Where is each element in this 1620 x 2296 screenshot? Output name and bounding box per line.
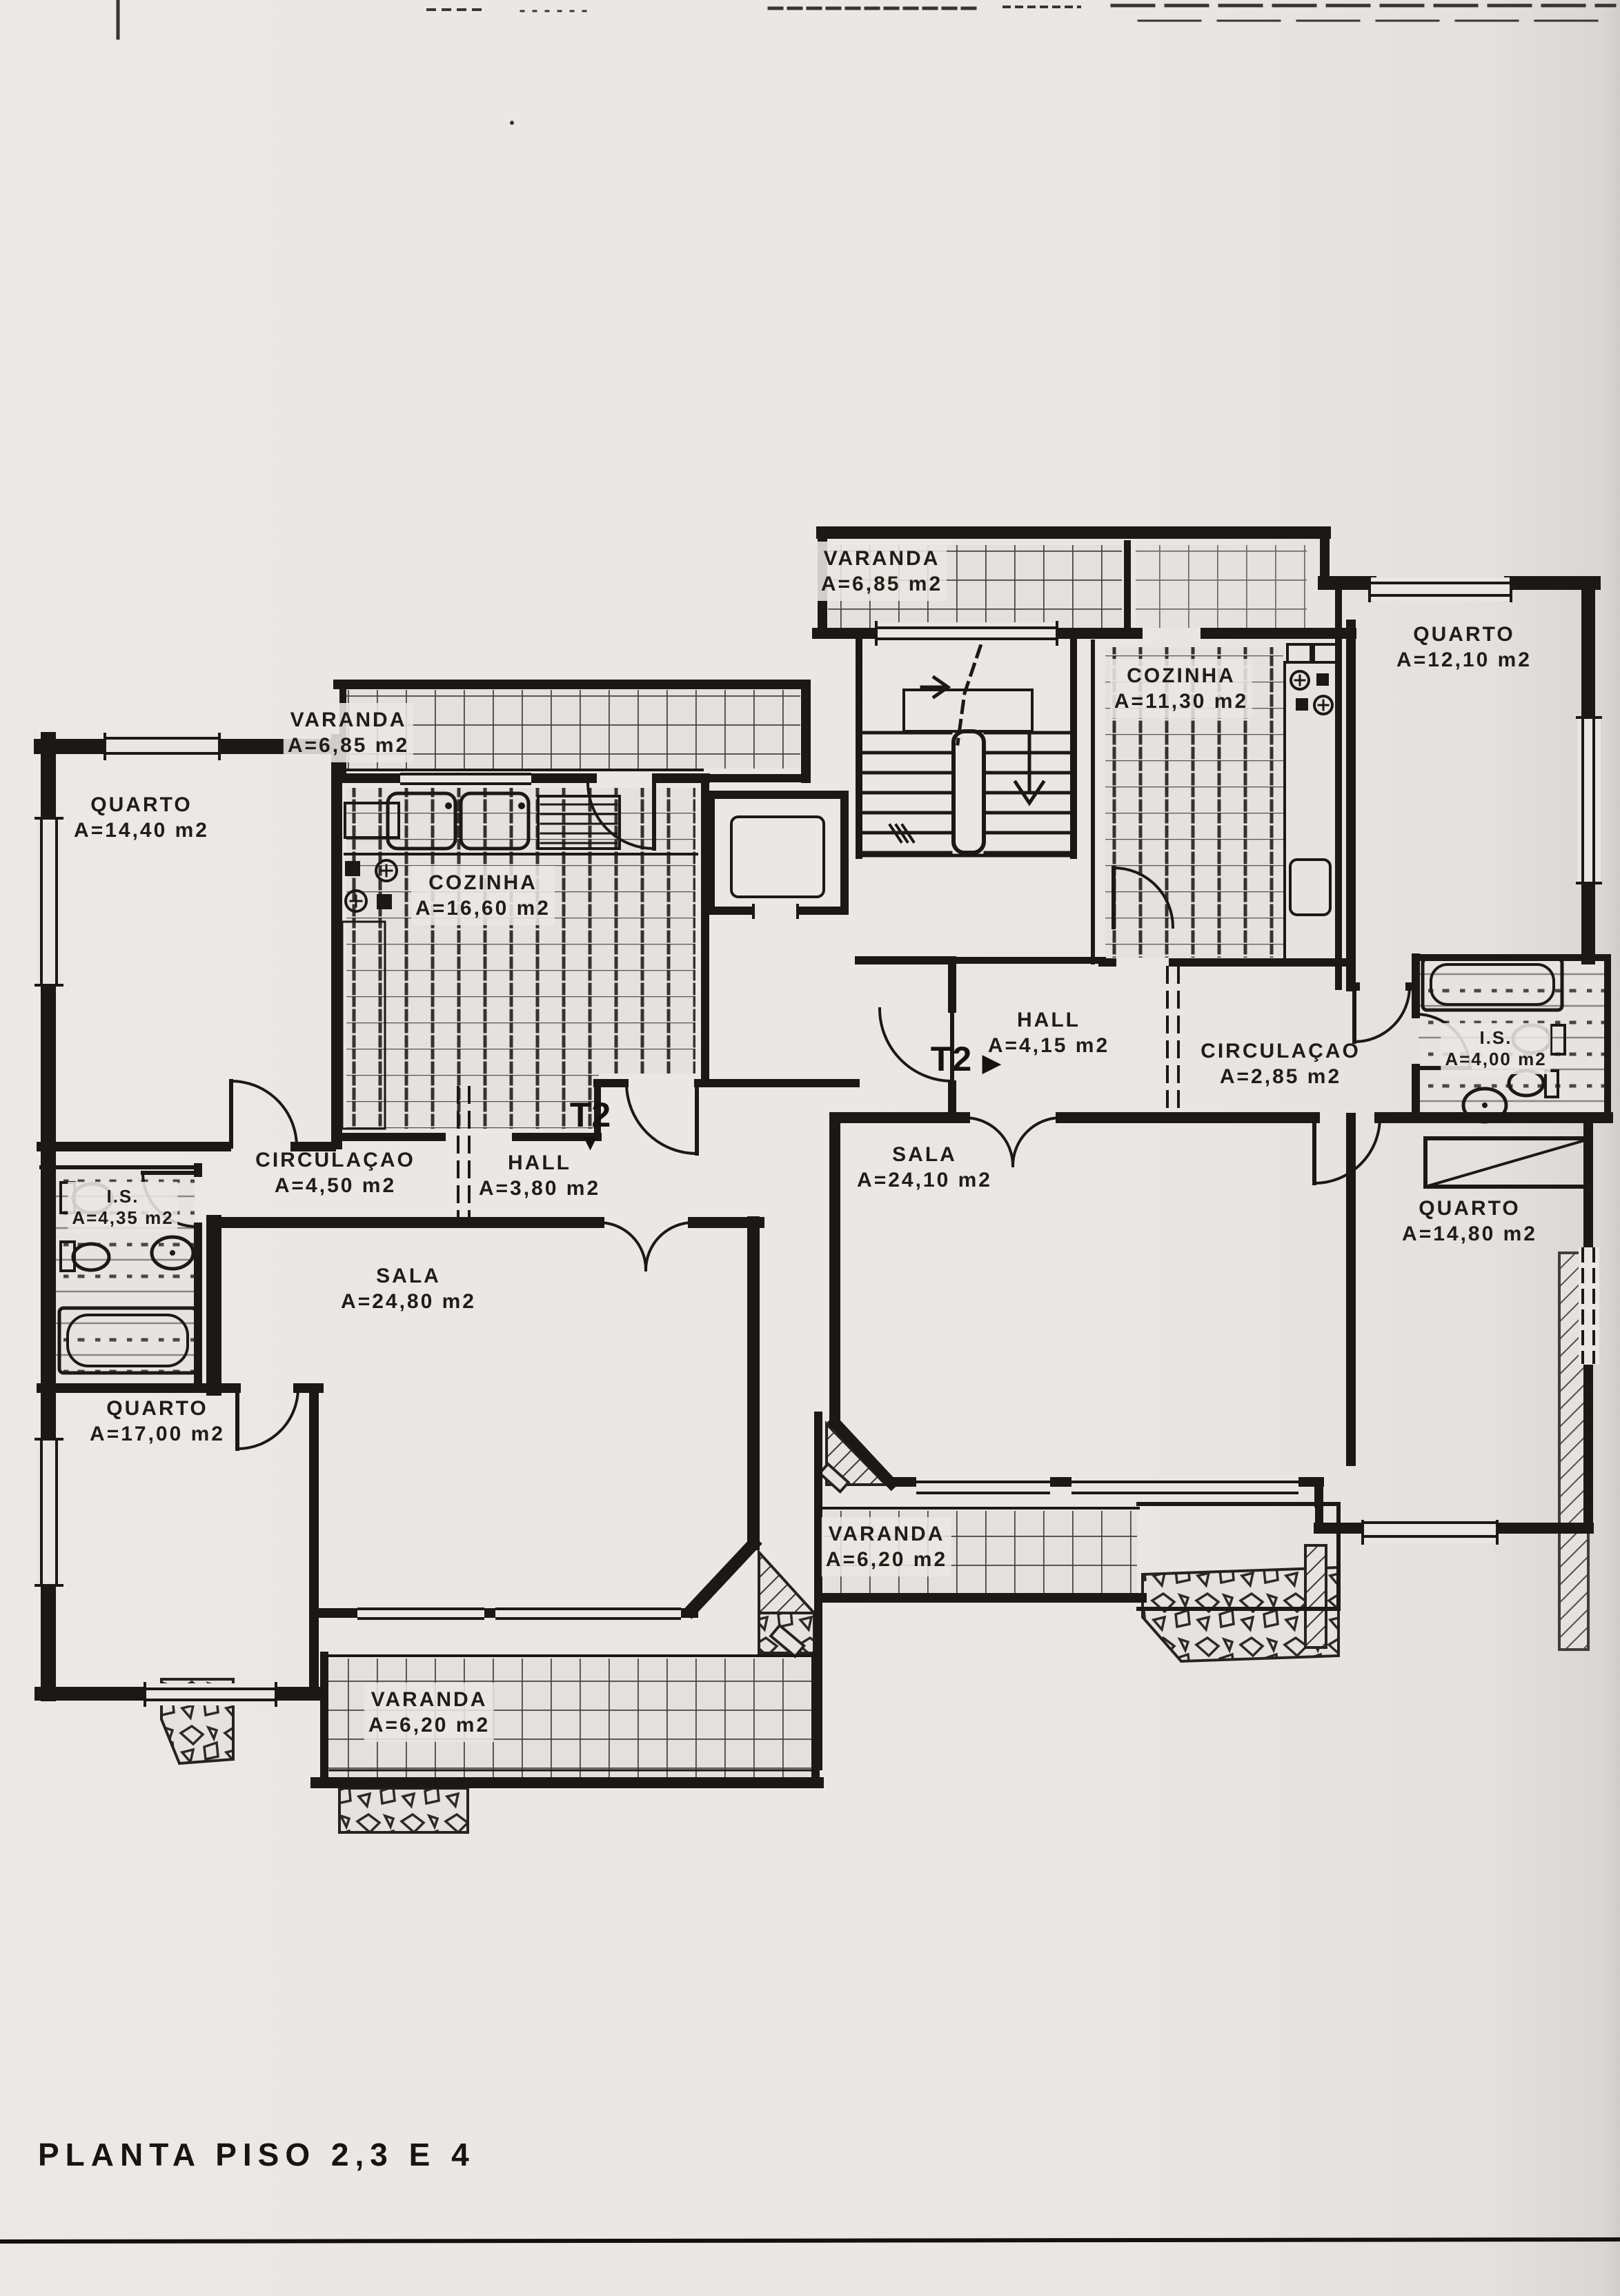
room-area: A=3,80 m2 <box>479 1176 600 1201</box>
room-name: VARANDA <box>826 1521 947 1547</box>
room-area: A=6,20 m2 <box>826 1547 947 1572</box>
room-area: A=14,80 m2 <box>1402 1221 1537 1247</box>
room-name: SALA <box>341 1263 476 1289</box>
room-label-cozinha-left: COZINHA A=16,60 m2 <box>415 870 551 921</box>
elevator <box>711 795 844 918</box>
room-label-circulacao-right: CIRCULAÇAO A=2,85 m2 <box>1201 1038 1361 1089</box>
right-arrow-icon: ▶ <box>982 1050 1001 1076</box>
room-label-quarto-bottom-left: QUARTO A=17,00 m2 <box>90 1396 225 1447</box>
room-name: CIRCULAÇAO <box>1201 1038 1361 1064</box>
room-area: A=14,40 m2 <box>74 818 209 843</box>
scan-noise <box>118 0 1614 125</box>
staircase <box>859 628 1074 855</box>
room-name: VARANDA <box>821 546 942 571</box>
room-name: QUARTO <box>90 1396 225 1421</box>
room-area: A=16,60 m2 <box>415 895 551 921</box>
room-area: A=6,20 m2 <box>368 1712 490 1738</box>
room-area: A=6,85 m2 <box>821 571 942 597</box>
room-label-varanda-left: VARANDA A=6,85 m2 <box>288 707 409 758</box>
unit-label: T2 <box>570 1096 611 1134</box>
room-name: VARANDA <box>288 707 409 733</box>
room-name: QUARTO <box>1402 1196 1537 1221</box>
room-label-sala-left: SALA A=24,80 m2 <box>341 1263 476 1314</box>
room-label-quarto-top-right: QUARTO A=12,10 m2 <box>1396 622 1532 673</box>
floor-plan-drawing <box>0 0 1620 2296</box>
unit-marker-t2-left: T2 ▼ <box>570 1100 611 1155</box>
room-area: A=17,00 m2 <box>90 1421 225 1447</box>
room-area: A=4,35 m2 <box>72 1207 173 1229</box>
room-label-cozinha-right: COZINHA A=11,30 m2 <box>1114 663 1248 714</box>
room-label-hall-left: HALL A=3,80 m2 <box>479 1150 600 1201</box>
room-area: A=24,10 m2 <box>857 1167 992 1193</box>
room-name: QUARTO <box>74 792 209 818</box>
room-label-circulacao-left: CIRCULAÇAO A=4,50 m2 <box>255 1147 415 1198</box>
room-area: A=11,30 m2 <box>1114 689 1248 714</box>
room-area: A=24,80 m2 <box>341 1289 476 1314</box>
room-label-varanda-bottom-right: VARANDA A=6,20 m2 <box>826 1521 947 1572</box>
scanned-floorplan-page: VARANDA A=6,85 m2 COZINHA A=11,30 m2 QUA… <box>0 0 1620 2296</box>
room-label-quarto-top-left: QUARTO A=14,40 m2 <box>74 792 209 843</box>
room-area: A=6,85 m2 <box>288 733 409 758</box>
room-area: A=12,10 m2 <box>1396 647 1532 673</box>
room-area: A=4,15 m2 <box>988 1033 1109 1058</box>
room-label-varanda-bottom-left: VARANDA A=6,20 m2 <box>368 1687 490 1738</box>
room-label-varanda-top: VARANDA A=6,85 m2 <box>821 546 942 597</box>
drawing-title: PLANTA PISO 2,3 E 4 <box>38 2136 475 2173</box>
room-name: CIRCULAÇAO <box>255 1147 415 1173</box>
room-label-quarto-right: QUARTO A=14,80 m2 <box>1402 1196 1537 1247</box>
room-area: A=4,50 m2 <box>255 1173 415 1198</box>
footer-rule <box>0 2239 1620 2241</box>
room-label-sala-right: SALA A=24,10 m2 <box>857 1142 992 1193</box>
room-label-is-right: I.S. A=4,00 m2 <box>1445 1027 1546 1070</box>
unit-marker-t2-right: T2 ▶ <box>931 1044 1001 1078</box>
room-name: SALA <box>857 1142 992 1167</box>
room-name: I.S. <box>72 1186 173 1207</box>
room-name: HALL <box>988 1007 1109 1033</box>
wardrobe <box>1425 1138 1587 1187</box>
unit-label: T2 <box>931 1040 972 1078</box>
room-area: A=4,00 m2 <box>1445 1049 1546 1070</box>
kitchen-right-fixtures <box>1285 644 1337 958</box>
room-name: VARANDA <box>368 1687 490 1712</box>
room-area: A=2,85 m2 <box>1201 1064 1361 1089</box>
room-name: I.S. <box>1445 1027 1546 1049</box>
room-name: COZINHA <box>415 870 551 895</box>
room-label-hall-right: HALL A=4,15 m2 <box>988 1007 1109 1058</box>
room-name: COZINHA <box>1114 663 1248 689</box>
room-name: QUARTO <box>1396 622 1532 647</box>
room-label-is-left: I.S. A=4,35 m2 <box>72 1186 173 1229</box>
